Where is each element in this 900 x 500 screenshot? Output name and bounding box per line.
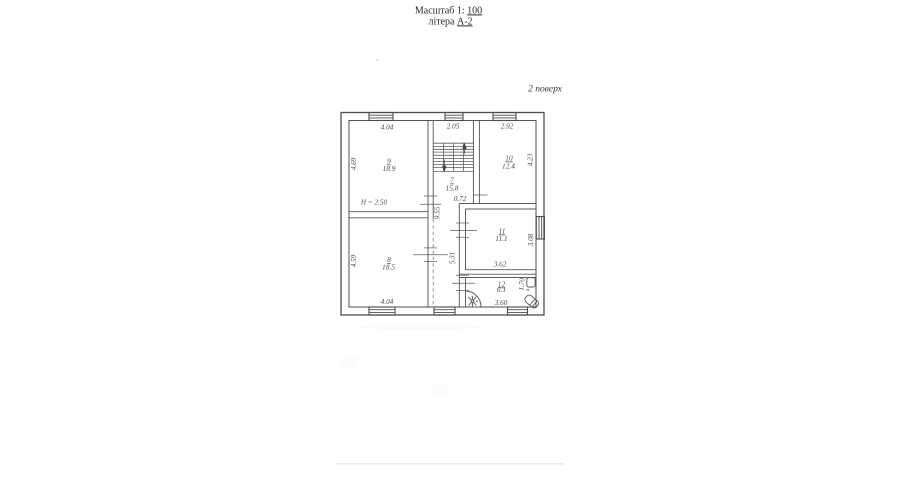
- svg-text:18.9: 18.9: [383, 164, 396, 173]
- svg-text:3.08: 3.08: [527, 233, 535, 247]
- svg-text:Масштаб 1: 100: Масштаб 1: 100: [415, 5, 482, 16]
- svg-text:5.31: 5.31: [449, 252, 457, 265]
- svg-text:4.23: 4.23: [527, 153, 535, 166]
- svg-text:18.5: 18.5: [382, 263, 395, 272]
- svg-text:4.69: 4.69: [350, 157, 358, 170]
- svg-text:1.70: 1.70: [517, 277, 526, 291]
- svg-text:3.60: 3.60: [494, 299, 508, 307]
- svg-text:4.04: 4.04: [381, 124, 394, 132]
- svg-text:4.59: 4.59: [350, 254, 358, 267]
- svg-text:3.62: 3.62: [493, 261, 507, 269]
- svg-text:6.1: 6.1: [497, 285, 506, 294]
- svg-text:0.72: 0.72: [454, 195, 467, 203]
- svg-text:Н = 2.50: Н = 2.50: [360, 199, 388, 207]
- svg-text:9.55: 9.55: [434, 206, 442, 219]
- svg-text:літера А-2: літера А-2: [428, 16, 472, 27]
- svg-text:2.92: 2.92: [501, 123, 514, 131]
- svg-text:2.05: 2.05: [447, 123, 460, 131]
- svg-text:12.4: 12.4: [502, 162, 515, 171]
- svg-text:4.04: 4.04: [381, 298, 394, 306]
- svg-text:11.1: 11.1: [495, 234, 507, 243]
- svg-text:15.8: 15.8: [446, 184, 459, 193]
- svg-text:2 поверх: 2 поверх: [528, 85, 563, 95]
